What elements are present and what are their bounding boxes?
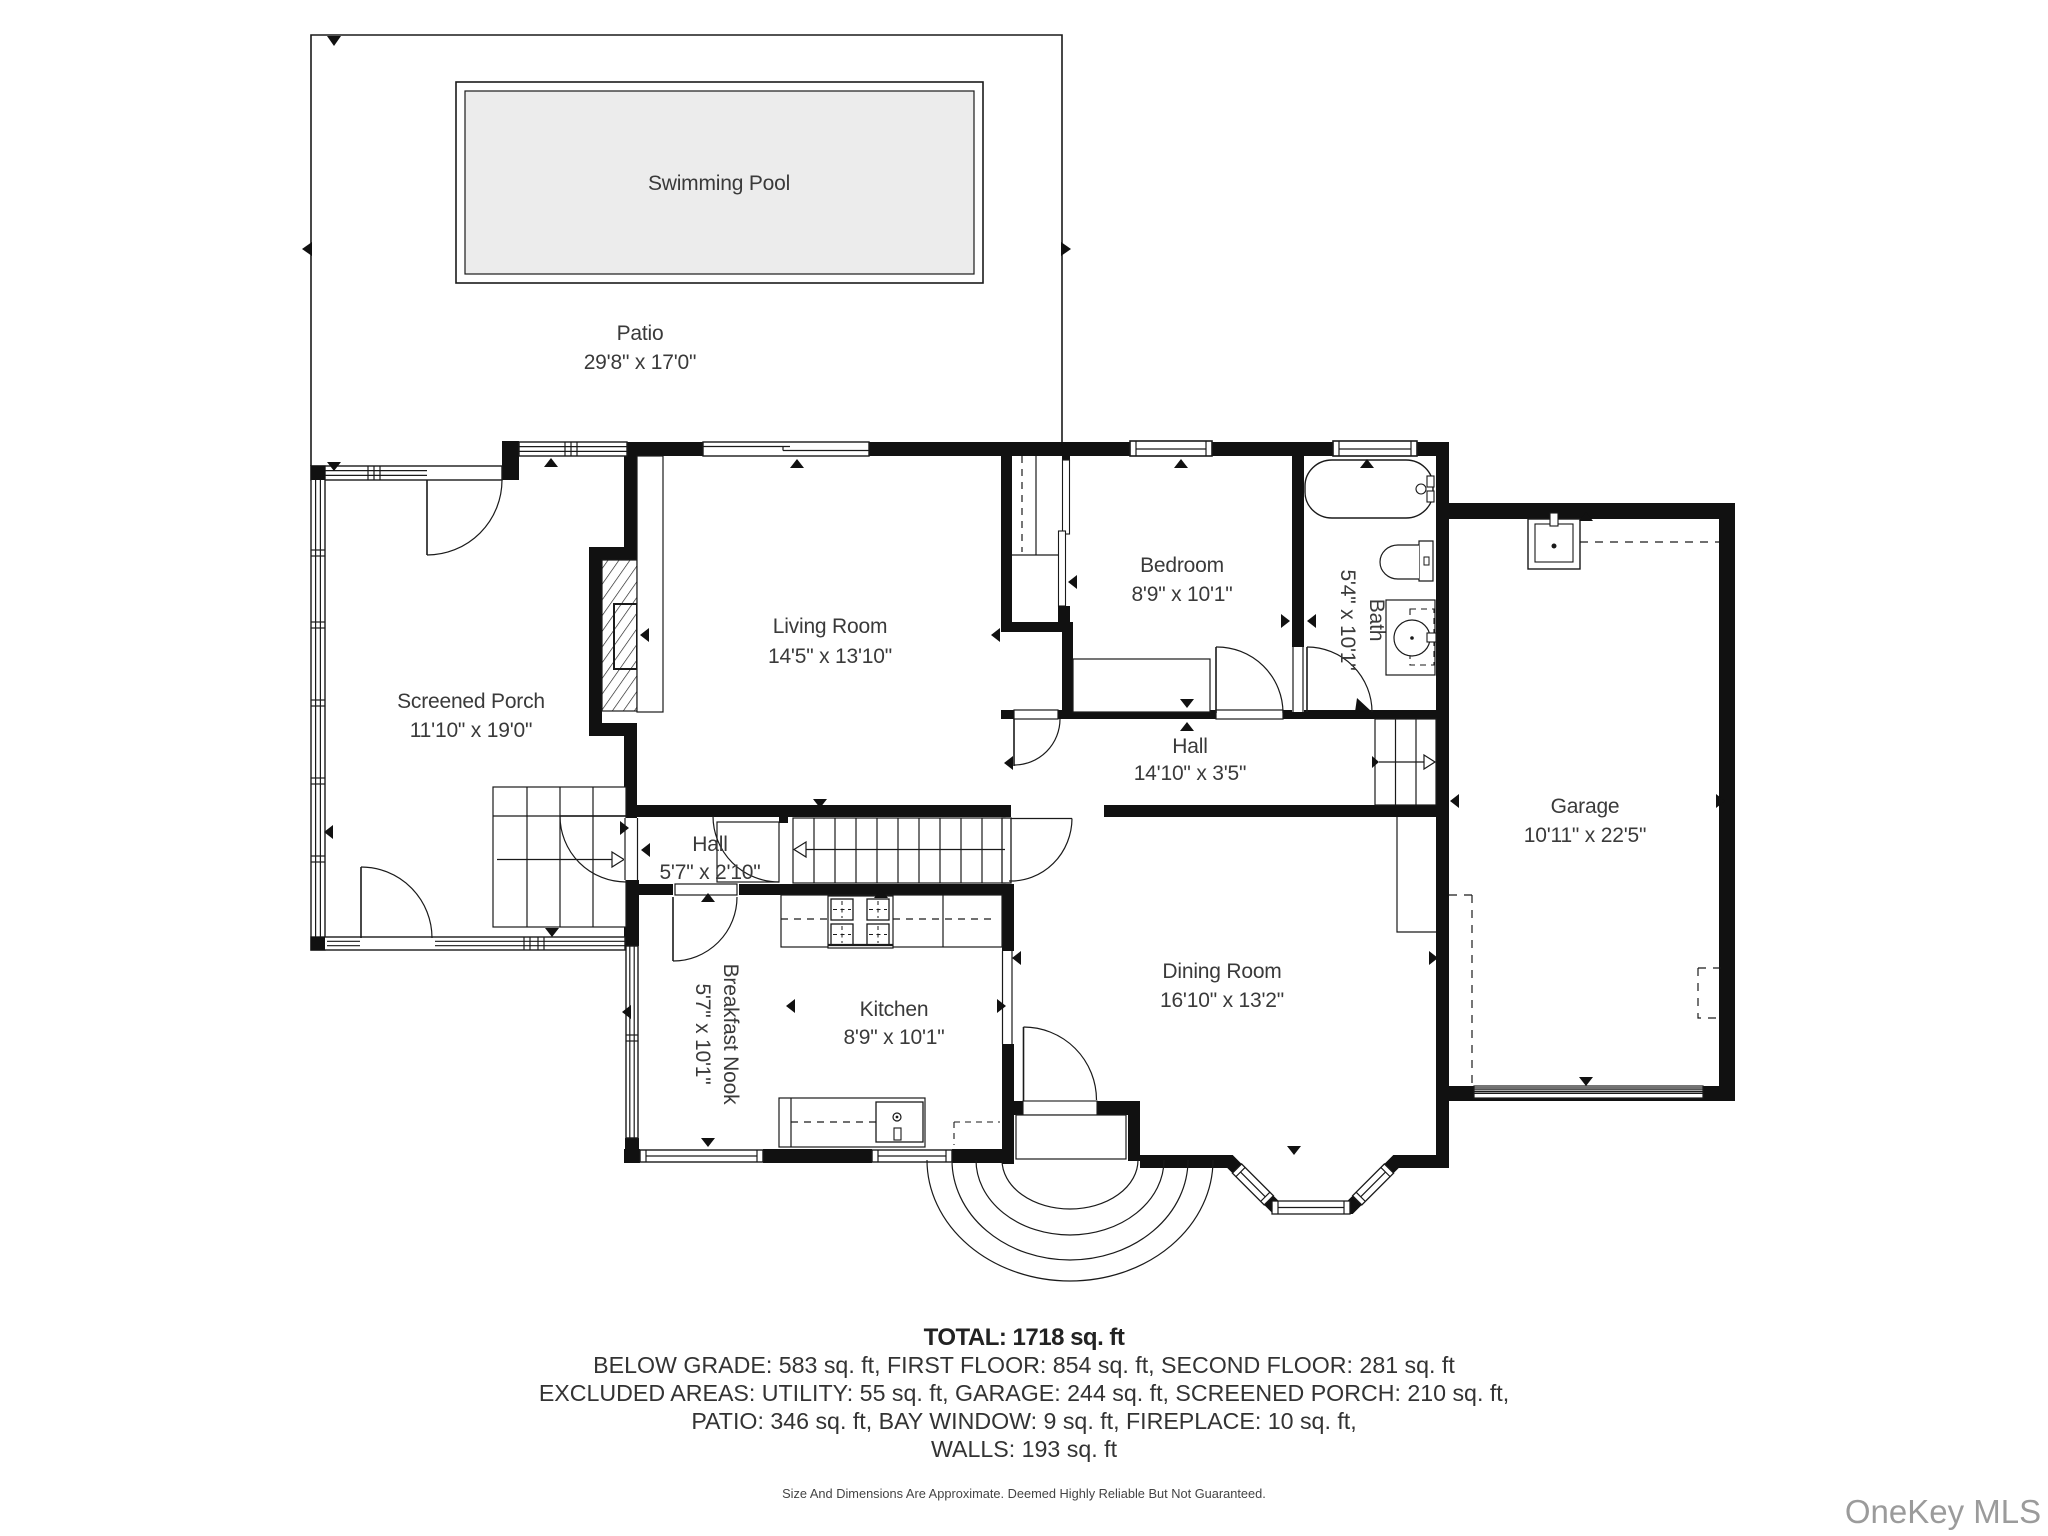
svg-text:5'7" x 10'1": 5'7" x 10'1" xyxy=(691,983,714,1084)
svg-text:Size And Dimensions Are Approx: Size And Dimensions Are Approximate. Dee… xyxy=(782,1486,1266,1501)
svg-text:11'10" x 19'0": 11'10" x 19'0" xyxy=(410,719,533,742)
svg-text:5'4" x 10'1": 5'4" x 10'1" xyxy=(1336,569,1359,670)
svg-text:14'5" x 13'10": 14'5" x 13'10" xyxy=(768,645,892,668)
svg-text:TOTAL: 1718 sq. ft: TOTAL: 1718 sq. ft xyxy=(924,1324,1125,1351)
svg-text:WALLS: 193 sq. ft: WALLS: 193 sq. ft xyxy=(931,1436,1118,1462)
svg-text:Living Room: Living Room xyxy=(773,615,888,638)
svg-text:Patio: Patio xyxy=(617,322,664,345)
svg-text:Swimming Pool: Swimming Pool xyxy=(648,172,790,195)
svg-text:Bath: Bath xyxy=(1365,599,1388,641)
svg-text:29'8" x 17'0": 29'8" x 17'0" xyxy=(584,351,697,374)
svg-text:Kitchen: Kitchen xyxy=(860,998,929,1021)
svg-text:Garage: Garage xyxy=(1551,795,1620,818)
svg-text:PATIO: 346 sq. ft, BAY WINDOW:: PATIO: 346 sq. ft, BAY WINDOW: 9 sq. ft,… xyxy=(691,1408,1356,1434)
svg-text:14'10" x 3'5": 14'10" x 3'5" xyxy=(1134,762,1247,785)
svg-text:8'9" x 10'1": 8'9" x 10'1" xyxy=(1131,583,1232,606)
svg-text:OneKey MLS: OneKey MLS xyxy=(1845,1493,2041,1530)
svg-text:Hall: Hall xyxy=(1172,735,1207,758)
svg-text:8'9" x 10'1": 8'9" x 10'1" xyxy=(843,1026,944,1049)
svg-text:Breakfast Nook: Breakfast Nook xyxy=(719,964,742,1105)
svg-text:Hall: Hall xyxy=(692,833,727,856)
svg-text:5'7" x 2'10": 5'7" x 2'10" xyxy=(659,861,760,884)
svg-text:Dining Room: Dining Room xyxy=(1162,960,1281,983)
svg-text:Screened Porch: Screened Porch xyxy=(397,690,545,713)
svg-text:10'11" x 22'5": 10'11" x 22'5" xyxy=(1524,824,1647,847)
svg-text:16'10" x 13'2": 16'10" x 13'2" xyxy=(1160,989,1284,1012)
svg-text:Bedroom: Bedroom xyxy=(1140,554,1224,577)
svg-text:EXCLUDED AREAS: UTILITY: 55 sq: EXCLUDED AREAS: UTILITY: 55 sq. ft, GARA… xyxy=(539,1380,1509,1406)
svg-text:BELOW GRADE: 583 sq. ft, FIRST: BELOW GRADE: 583 sq. ft, FIRST FLOOR: 85… xyxy=(593,1352,1455,1378)
